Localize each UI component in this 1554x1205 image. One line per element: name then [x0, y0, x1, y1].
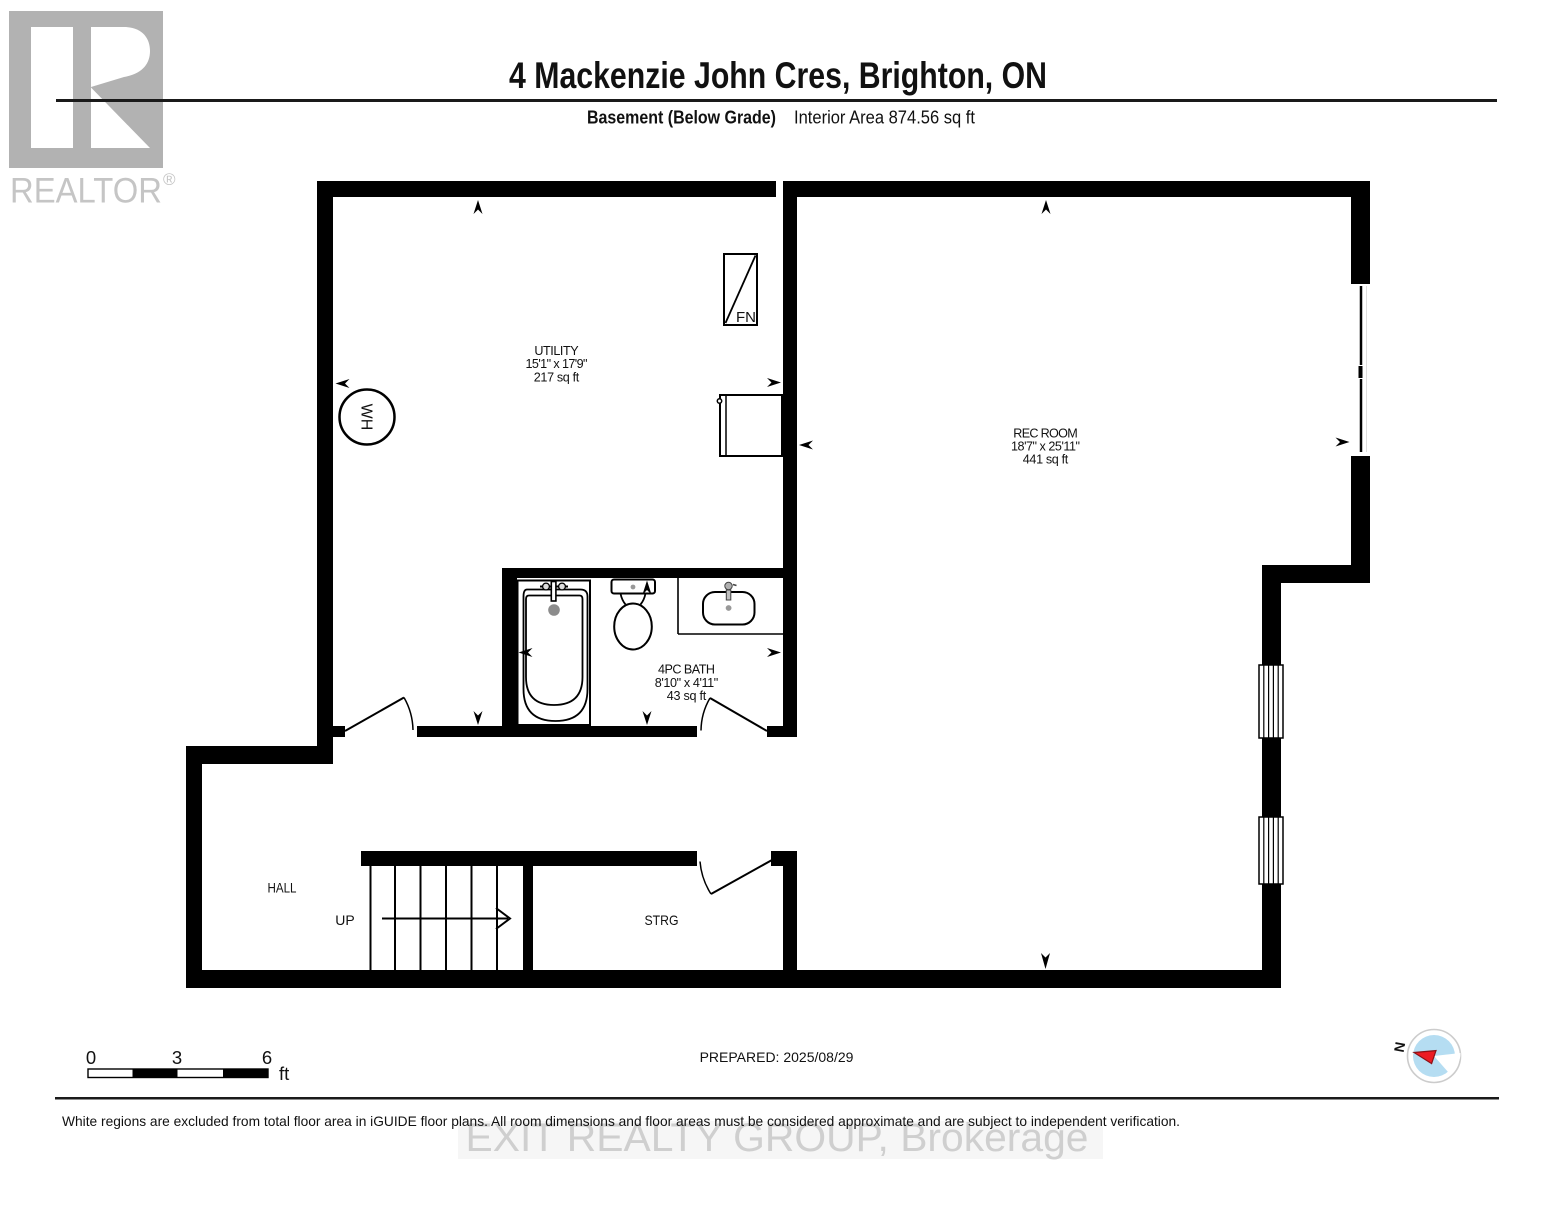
svg-text:0: 0 — [86, 1047, 96, 1068]
svg-text:217 sq ft: 217 sq ft — [534, 370, 580, 384]
svg-text:43 sq ft: 43 sq ft — [667, 689, 707, 703]
svg-text:UP: UP — [335, 912, 354, 928]
svg-text:®: ® — [163, 170, 176, 189]
svg-text:15'1" x 17'9": 15'1" x 17'9" — [526, 357, 588, 371]
svg-text:FN: FN — [736, 309, 756, 326]
svg-text:HALL: HALL — [268, 880, 297, 896]
svg-text:441 sq ft: 441 sq ft — [1023, 453, 1069, 467]
svg-text:PREPARED: 2025/08/29: PREPARED: 2025/08/29 — [700, 1049, 854, 1065]
svg-text:UTILITY: UTILITY — [534, 344, 579, 358]
svg-text:4 Mackenzie John Cres, Brighto: 4 Mackenzie John Cres, Brighton, ON — [509, 54, 1047, 96]
svg-text:3: 3 — [172, 1047, 182, 1068]
svg-text:REC ROOM: REC ROOM — [1013, 427, 1077, 441]
svg-text:18'7" x 25'11": 18'7" x 25'11" — [1011, 440, 1080, 454]
svg-text:WH: WH — [358, 404, 375, 431]
svg-text:White regions are excluded fro: White regions are excluded from total fl… — [62, 1113, 1180, 1129]
svg-text:STRG: STRG — [645, 912, 679, 928]
svg-text:6: 6 — [262, 1047, 272, 1068]
svg-text:4PC BATH: 4PC BATH — [658, 663, 715, 677]
svg-text:8'10" x 4'11": 8'10" x 4'11" — [655, 676, 719, 690]
svg-text:Basement (Below Grade): Basement (Below Grade) — [587, 107, 776, 128]
svg-text:Interior Area 874.56 sq ft: Interior Area 874.56 sq ft — [794, 107, 976, 128]
svg-text:ft: ft — [279, 1063, 289, 1084]
svg-text:REALTOR: REALTOR — [10, 172, 162, 211]
